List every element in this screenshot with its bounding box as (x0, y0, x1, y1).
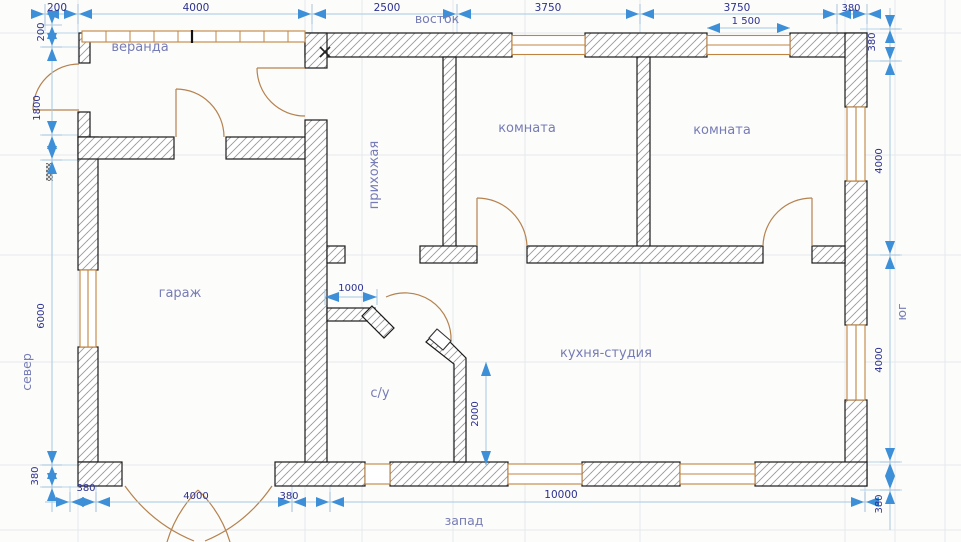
window-right-kitchen (847, 325, 865, 400)
dim-top-200: 200 (47, 2, 67, 14)
label-veranda: веранда (111, 40, 168, 55)
label-room2: комната (693, 123, 751, 138)
wall-right-2 (845, 181, 867, 325)
dim-bottom-4000: 4000 (183, 491, 208, 502)
wall-top-1 (305, 33, 512, 57)
dim-left-1800: 1800 (32, 95, 43, 120)
dim-right-4000b: 4000 (874, 347, 885, 372)
wall-mid-1 (327, 246, 345, 263)
dim-bottom-380a: 380 (76, 483, 95, 494)
dim-bottom-380b: 380 (279, 491, 298, 502)
window-bottom-kitchen-1 (508, 464, 582, 484)
floor-plan-canvas: 200 4000 2500 3750 3750 380 1 500 200 18… (0, 0, 961, 542)
wall-garage-top-1 (78, 137, 174, 159)
dim-left-200: 200 (36, 22, 47, 41)
label-hallway: прихожая (367, 141, 382, 209)
wall-bottom-1 (275, 462, 365, 486)
wall-bottom-4 (755, 462, 867, 486)
wall-mid-4 (812, 246, 845, 263)
label-kitchen: кухня-студия (560, 346, 652, 361)
compass-west: запад (445, 513, 484, 528)
wall-mid-2 (420, 246, 477, 263)
dim-right-4000a: 4000 (874, 148, 885, 173)
wall-divider-main (305, 120, 327, 462)
label-garage: гараж (159, 286, 202, 301)
room-labels: веранда прихожая комната комната гараж к… (111, 40, 750, 401)
window-right-room2 (847, 107, 865, 181)
dim-top-4000: 4000 (183, 2, 210, 14)
dim-left-6000: 6000 (36, 303, 47, 328)
dim-left-380: 380 (30, 466, 41, 485)
dim-top-2500: 2500 (374, 2, 401, 14)
label-room1: комната (498, 121, 556, 136)
wall-bath-diag-1 (362, 306, 394, 338)
wall-mid-3 (527, 246, 763, 263)
wall-top-2 (585, 33, 707, 57)
wall-hall-room1 (443, 57, 456, 247)
wall-bottom-3 (582, 462, 680, 486)
window-top-room1 (512, 36, 585, 55)
wall-garage-left-stub (78, 112, 90, 137)
floor-plan-drawing: 200 4000 2500 3750 3750 380 1 500 200 18… (0, 0, 961, 542)
dim-top-380: 380 (841, 3, 860, 14)
dim-bath-2000: 2000 (470, 401, 481, 426)
dim-right-380a: 380 (867, 32, 878, 51)
door-veranda-garage (176, 89, 224, 137)
window-garage-left (80, 270, 96, 347)
wall-garage-left-2 (78, 347, 98, 462)
wall-right-1 (845, 33, 867, 107)
compass-south: юг (894, 303, 909, 320)
door-room1 (477, 198, 527, 246)
wall-bath-right (426, 330, 466, 462)
window-bottom-kitchen-2 (680, 464, 755, 484)
grid-lines (0, 0, 961, 542)
compass-east: восток (415, 11, 460, 26)
compass-north: север (19, 353, 34, 391)
door-veranda-hallway (257, 68, 305, 116)
dim-window-1500: 1 500 (732, 16, 761, 27)
label-bathroom: с/у (370, 386, 390, 401)
dim-top-3750a: 3750 (535, 2, 562, 14)
vent-bottom-bath (365, 464, 390, 484)
dim-bath-1000: 1000 (338, 283, 363, 294)
dim-bottom-10000: 10000 (544, 489, 577, 501)
wall-room1-room2 (637, 57, 650, 247)
wall-bottom-2 (390, 462, 508, 486)
dim-top-3750b: 3750 (724, 2, 751, 14)
dim-right-380b: 380 (874, 494, 885, 513)
window-top-room2 (707, 36, 790, 55)
door-room2 (763, 198, 812, 246)
